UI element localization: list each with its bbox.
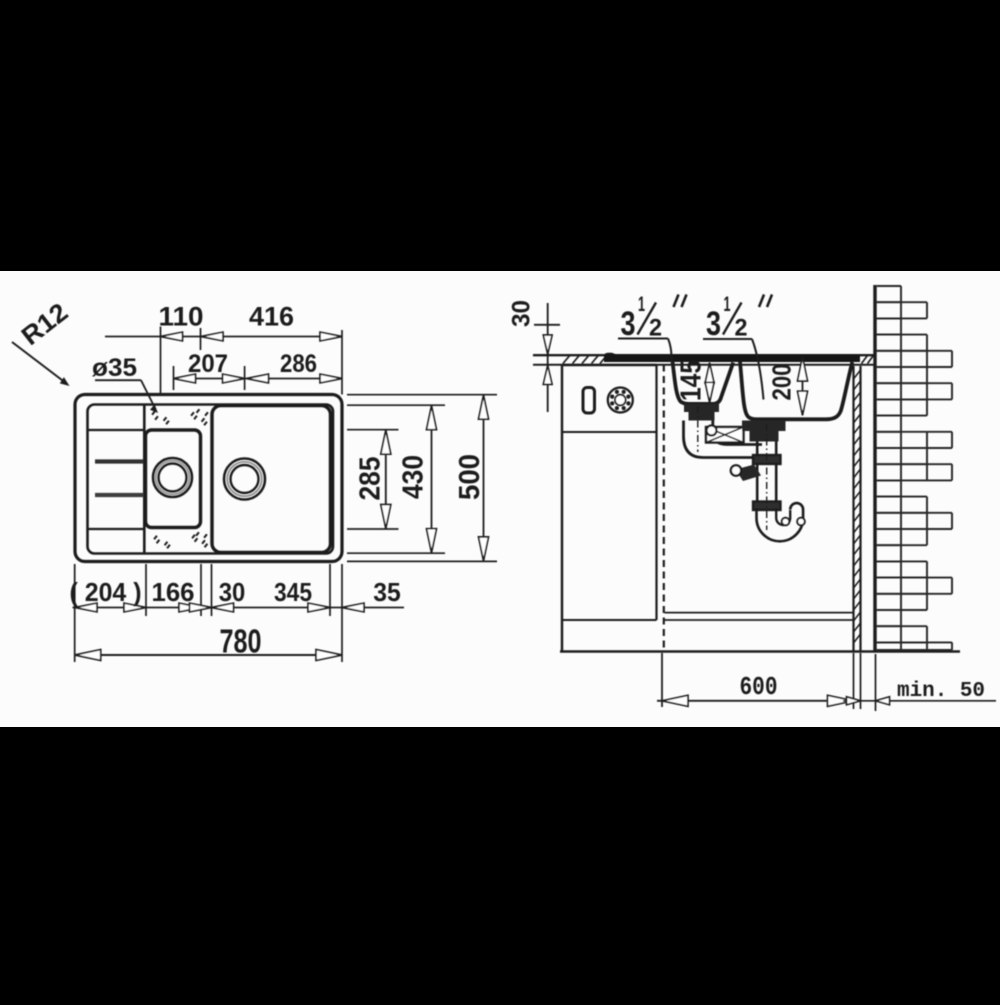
svg-text:286: 286 [280,350,317,378]
svg-text:600: 600 [740,672,778,702]
svg-text:110: 110 [159,302,204,332]
svg-text:30: 30 [508,300,536,327]
svg-text:780: 780 [220,623,262,660]
svg-text:2: 2 [735,315,748,342]
svg-text:35: 35 [373,577,401,607]
svg-text:1: 1 [724,293,731,316]
svg-text:3: 3 [621,305,636,343]
svg-text:ø35: ø35 [92,354,137,382]
svg-text:2: 2 [649,315,662,342]
svg-text:430: 430 [398,455,430,499]
svg-text:200: 200 [767,364,797,401]
svg-text:285: 285 [355,457,387,501]
svg-text:30: 30 [219,577,246,607]
svg-text:( 204 ): ( 204 ) [70,577,142,607]
svg-text:3: 3 [706,305,721,343]
svg-text:1: 1 [638,293,645,316]
svg-text:145: 145 [676,360,708,401]
svg-text:166: 166 [152,577,195,607]
svg-text:500: 500 [454,454,486,500]
svg-text:min. 50: min. 50 [897,680,985,703]
svg-text:207: 207 [188,350,228,378]
svg-text:416: 416 [249,302,294,332]
svg-text:345: 345 [274,577,312,607]
